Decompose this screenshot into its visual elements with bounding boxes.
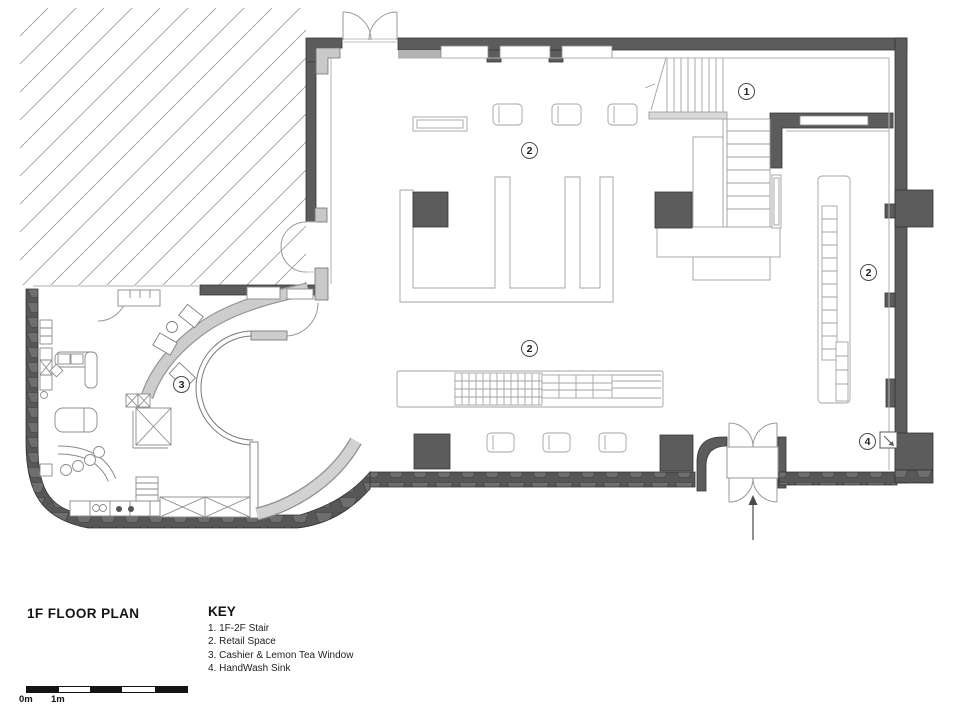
key-item-retail: 2. Retail Space	[208, 635, 353, 648]
floor-plan-drawing	[0, 0, 960, 713]
top-entrance-door	[342, 12, 398, 42]
entry-arrow-icon	[749, 495, 758, 540]
key-legend: KEY 1. 1F-2F Stair 2. Retail Space 3. Ca…	[208, 604, 353, 676]
room-label-cashier: 3	[173, 376, 190, 393]
room-label-sink: 4	[859, 433, 876, 450]
scale-segment	[27, 687, 59, 692]
wall-piers	[315, 48, 441, 300]
columns	[413, 192, 693, 471]
main-entrance-door	[727, 423, 778, 502]
room-label-retail-a: 2	[521, 142, 538, 159]
scale-segment	[155, 687, 187, 692]
page-title: 1F FLOOR PLAN	[27, 606, 139, 621]
key-item-cashier: 3. Cashier & Lemon Tea Window	[208, 649, 353, 662]
scale-segment	[59, 687, 90, 692]
scale-label-0m: 0m	[19, 694, 33, 705]
stair-1f-2f	[645, 58, 781, 280]
room-label-stair: 1	[738, 83, 755, 100]
scale-label-1m: 1m	[51, 694, 65, 705]
key-item-sink: 4. HandWash Sink	[208, 662, 353, 675]
hatched-area	[20, 8, 306, 285]
scale-segment	[122, 687, 155, 692]
column	[655, 192, 692, 228]
room-label-retail-b: 2	[521, 340, 538, 357]
floor-plan-page: 1 2 2 2 3 4 1F FLOOR PLAN KEY 1. 1F-2F S…	[0, 0, 960, 713]
scale-segment	[90, 687, 122, 692]
handwash-sink	[880, 432, 897, 448]
room-label-retail-c: 2	[860, 264, 877, 281]
scale-bar	[26, 686, 188, 693]
key-heading: KEY	[208, 604, 353, 619]
key-item-stair: 1. 1F-2F Stair	[208, 622, 353, 635]
